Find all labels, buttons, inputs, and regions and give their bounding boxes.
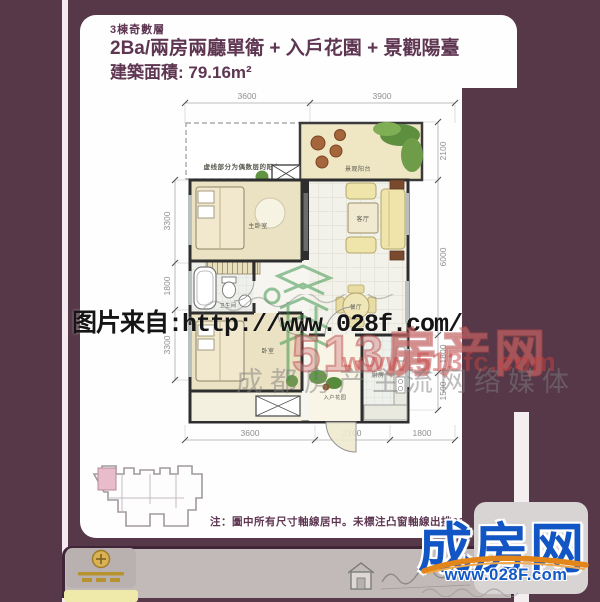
dim-bottom-3: 1800: [413, 428, 432, 438]
yellow-tab: [64, 590, 138, 602]
dim-right-2: 6000: [438, 247, 448, 266]
master-bedroom: 主卧室: [192, 182, 302, 260]
building-keyplan: [88, 452, 208, 540]
highlighted-unit: [98, 468, 116, 490]
built-area: 建築面積: 79.16m²: [110, 63, 459, 83]
block-floor-label: 3棟奇數層: [110, 24, 459, 37]
room-label-living: 客厅: [356, 215, 369, 223]
gold-emblem-icon: [66, 548, 136, 588]
tv-cabinet-icon: [304, 193, 309, 251]
header: 3棟奇數層 2Ba/兩房兩廳單衛 + 入戶花園 + 景觀陽臺 建築面積: 79.…: [110, 24, 459, 83]
room-label-view-balcony: 景观阳台: [345, 165, 371, 173]
dim-left-1: 3300: [162, 211, 172, 230]
dim-right-1: 2100: [438, 141, 448, 160]
left-accent-stripe: [62, 0, 68, 602]
dim-top-1: 3600: [238, 91, 257, 101]
entry-door-swing: [326, 422, 356, 452]
dim-left-2: 1800: [162, 276, 172, 295]
unit-title: 2Ba/兩房兩廳單衛 + 入戶花園 + 景觀陽臺: [110, 38, 459, 60]
view-balcony: 景观阳台: [300, 122, 423, 180]
dim-top-2: 3900: [373, 91, 392, 101]
house-icon: [348, 563, 374, 589]
brand-tagline-scribble: [420, 585, 540, 597]
dashed-balcony-note: 虚线部分为偶数层的阳台: [204, 162, 281, 171]
watermark-slogan: 成都房产主流网络媒体: [236, 360, 576, 399]
brand-url: www.028F.com: [424, 566, 588, 585]
room-label-master-bedroom: 主卧室: [248, 222, 268, 230]
dim-bottom-1: 3600: [241, 428, 260, 438]
page: { "header": { "block_label": "3棟奇數層", "t…: [0, 0, 600, 602]
